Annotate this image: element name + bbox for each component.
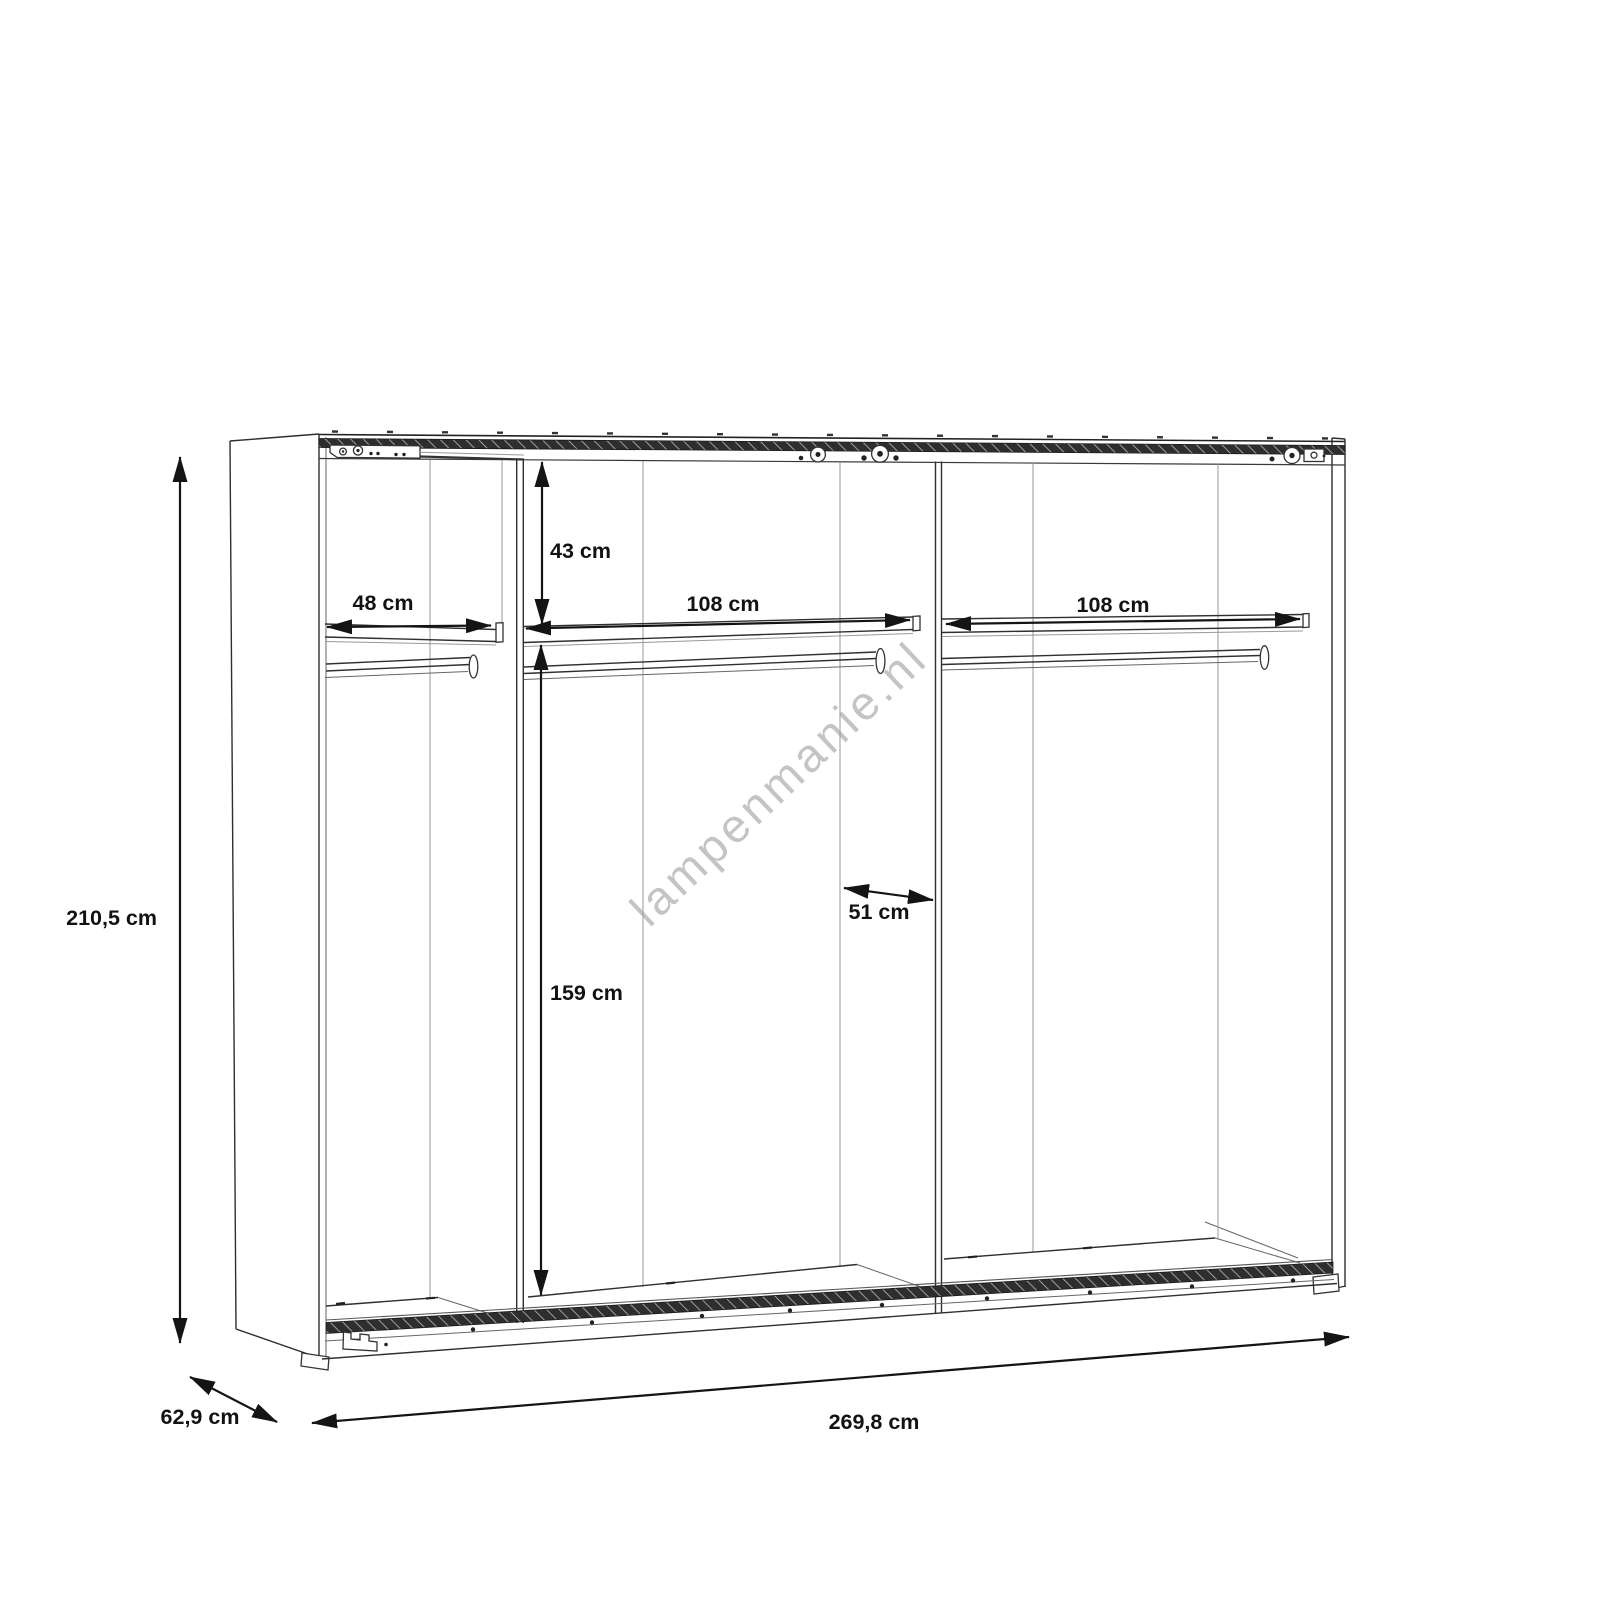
wardrobe-diagram: lampenmanie.nl xyxy=(0,0,1600,1600)
hanger-rods xyxy=(325,646,1269,680)
dim-right-shelf-line xyxy=(946,619,1300,624)
dim-height-label: 210,5 cm xyxy=(66,906,157,930)
middle-hanger-rod xyxy=(524,649,885,680)
dim-depth-label: 62,9 cm xyxy=(161,1405,240,1429)
right-hanger-rod xyxy=(942,646,1269,670)
left-hanger-rod xyxy=(325,655,478,678)
dim-lower-section-label: 159 cm xyxy=(550,981,623,1005)
dim-width-label: 269,8 cm xyxy=(829,1410,920,1434)
top-rail xyxy=(319,432,1345,466)
watermark: lampenmanie.nl xyxy=(620,630,938,935)
left-side-panel xyxy=(230,434,329,1370)
back-panel-seams xyxy=(430,460,1218,1299)
interior-partitions xyxy=(517,459,942,1323)
dim-middle-shelf-label: 108 cm xyxy=(687,592,760,616)
right-side-panel xyxy=(1205,438,1346,1294)
dim-inner-width-line xyxy=(844,888,933,900)
guide-bracket xyxy=(343,1332,377,1351)
wardrobe-dimension-diagram-page: lampenmanie.nl xyxy=(0,0,1600,1600)
dim-inner-width-label: 51 cm xyxy=(849,900,910,924)
left-foot xyxy=(301,1353,329,1370)
dim-left-shelf-label: 48 cm xyxy=(353,591,414,615)
dim-left-shelf-line xyxy=(327,626,491,628)
dim-upper-section-label: 43 cm xyxy=(550,539,611,563)
shelves xyxy=(325,614,1309,647)
dim-right-shelf-label: 108 cm xyxy=(1077,593,1150,617)
